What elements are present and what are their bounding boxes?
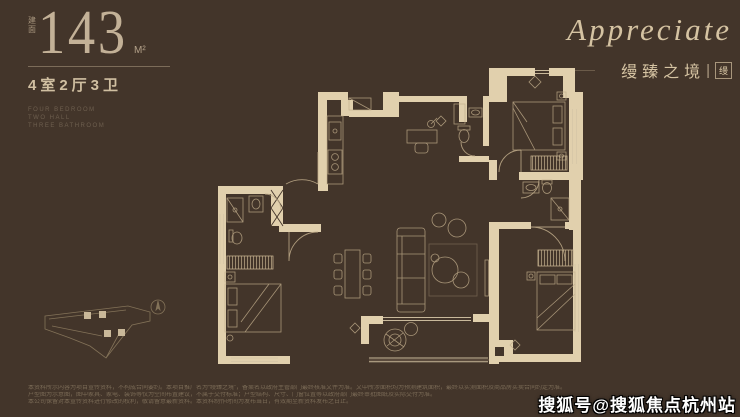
walls [218, 68, 583, 364]
bath1-fixtures-icon [227, 196, 263, 244]
watermark: 搜狐号@搜狐焦点杭州站 [538, 391, 736, 416]
dining-table-icon [334, 250, 371, 298]
bathroom-fixtures-icon [454, 104, 482, 143]
poster-canvas: 建面 143 M² 4室2厅3卫 FOUR BEDROOM TWO HALL T… [0, 0, 740, 417]
shaft-box [495, 347, 504, 356]
bedroom3-bed-icon [225, 272, 281, 341]
bedroom2-bed-icon [510, 272, 575, 350]
area-prefix-label: 建面 [28, 16, 36, 34]
brand-cn-text: 缦臻之境 [621, 58, 705, 82]
brand-divider: | [706, 62, 710, 79]
highlighted-units [84, 311, 125, 337]
area-unit: M² [134, 45, 146, 56]
brand-script-text: Appreciate [549, 12, 732, 48]
ensuite-fixtures-icon [523, 180, 569, 220]
balcony-plant-icon [350, 323, 489, 361]
area-value: 143 [38, 4, 128, 62]
site-plan [42, 296, 174, 370]
disclaimer-line: 户型图为示意图，图中家具、家电、装饰等仅为空间布置建议，不属于交付标准；户型结构… [28, 392, 573, 399]
tv-icon [485, 260, 489, 296]
sofa-icon [397, 228, 425, 312]
brand-seal-icon: 缦 [715, 62, 732, 79]
master-bed-icon [513, 76, 566, 160]
coffee-table-icon [429, 213, 477, 296]
doors [265, 142, 565, 261]
area-prefix-text: 建面 [28, 16, 36, 34]
floor-plan [183, 64, 595, 376]
area-row: 建面 143 M² [28, 4, 248, 62]
disclaimer: 本资料所示内容为项目宣传资料，不构成合同要约。本项目推广名为“缦臻之境”，备案名… [28, 385, 573, 406]
desk-icon [407, 116, 446, 153]
disclaimer-line: 本资料所示内容为项目宣传资料，不构成合同要约。本项目推广名为“缦臻之境”，备案名… [28, 385, 573, 392]
disclaimer-line: 本公司保留对本宣传资料进行修改的权利，敬请留意最新资料。本资料制作时间为发布当日… [28, 399, 573, 406]
